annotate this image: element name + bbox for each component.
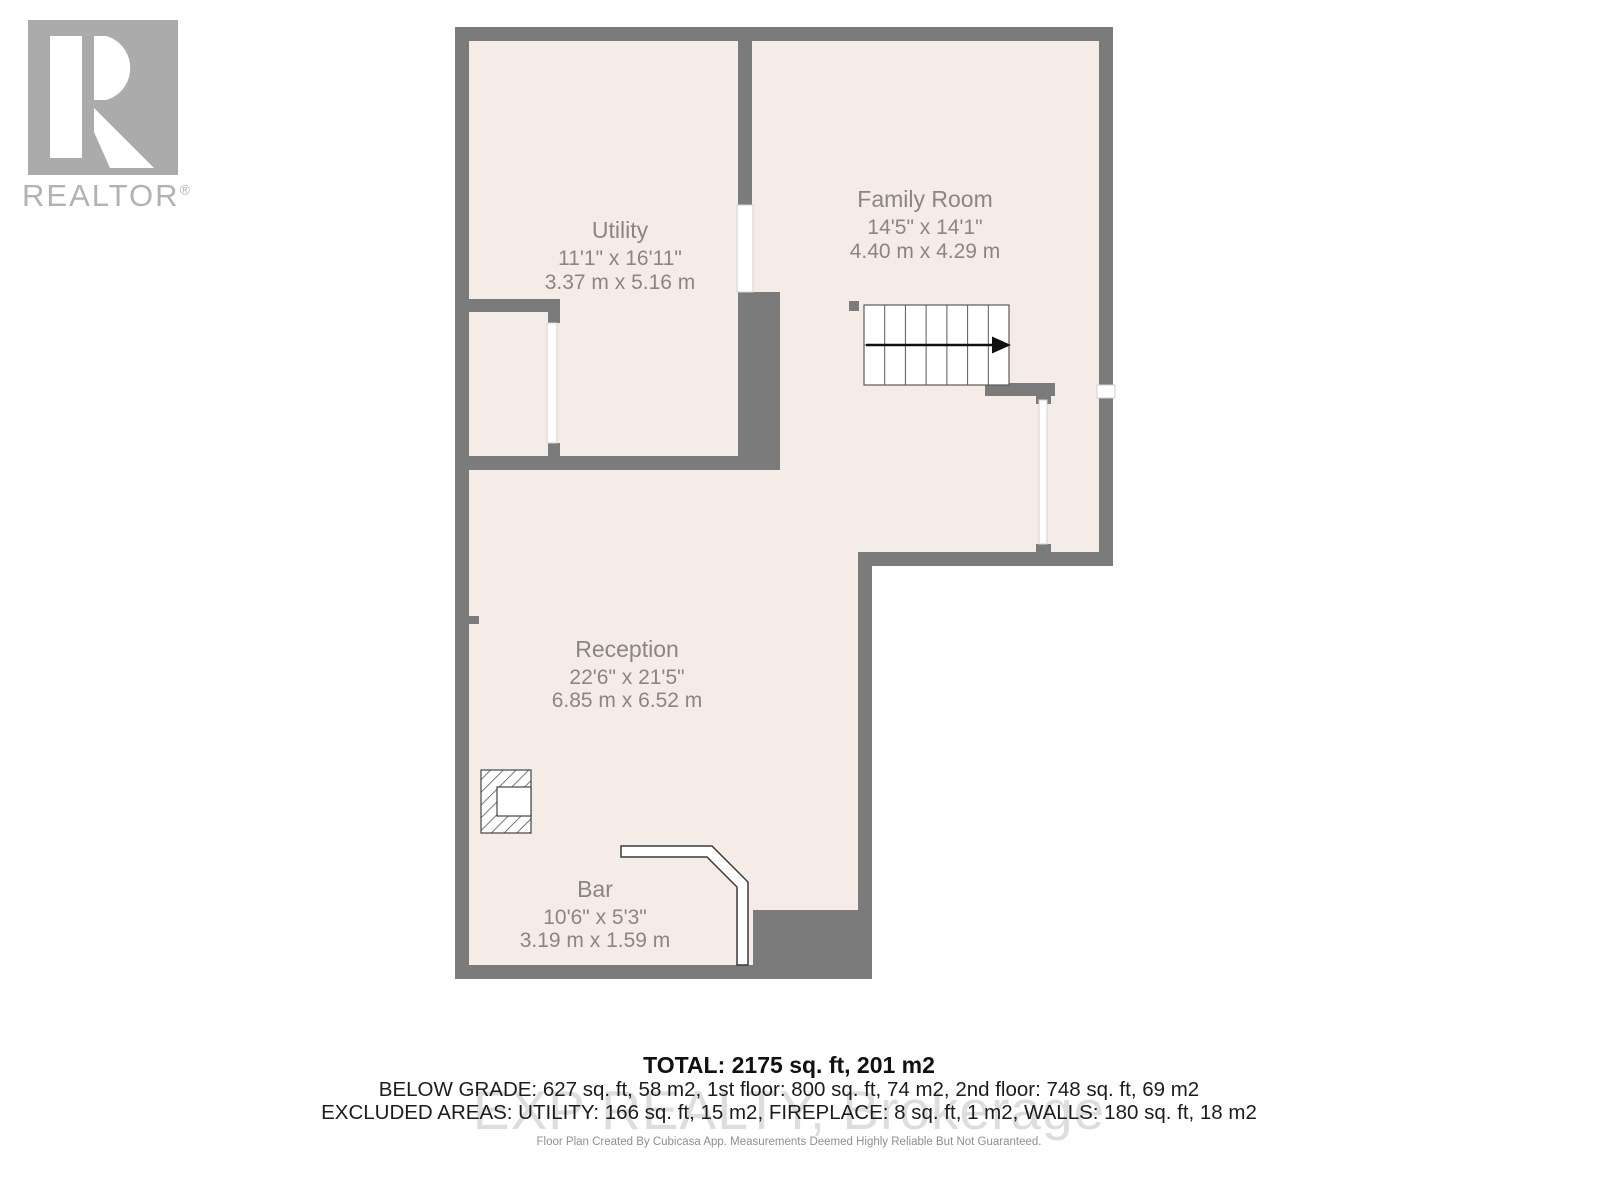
room-dim-metric-family-room: 4.40 m x 4.29 m — [850, 240, 1001, 263]
wall-bottom — [455, 965, 767, 979]
wall-closet-top — [469, 299, 560, 312]
wall-left — [455, 27, 469, 979]
closet-door-jamb-top — [548, 312, 560, 323]
total-area-text: TOTAL: 2175 sq. ft, 201 m2 — [0, 1052, 1578, 1078]
railing-tab-bottom — [1036, 544, 1051, 552]
disclaimer-text: Floor Plan Created By Cubicasa App. Meas… — [0, 1136, 1578, 1148]
room-dim-metric-utility: 3.37 m x 5.16 m — [545, 271, 696, 294]
excluded-areas-text: EXCLUDED AREAS: UTILITY: 166 sq. ft, 15 … — [0, 1101, 1578, 1124]
stair-newel-marker — [849, 301, 859, 311]
room-dim-imperial-family-room: 14'5" x 14'1" — [867, 216, 982, 239]
room-label-reception: Reception — [575, 636, 679, 662]
room-dim-imperial-utility: 11'1" x 16'11" — [558, 247, 682, 270]
realtor-wordmark: REALTOR® — [22, 178, 192, 214]
logo-r-stem — [50, 36, 82, 158]
right-wall-opening — [1097, 385, 1115, 398]
wall-utility-divider — [738, 41, 752, 205]
floor-area — [455, 27, 1113, 979]
closet-door-opening — [547, 323, 557, 443]
wall-left-tab — [469, 616, 479, 624]
wall-right — [1099, 27, 1113, 566]
floor-breakdown-text: BELOW GRADE: 627 sq. ft, 58 m2, 1st floo… — [0, 1078, 1578, 1101]
floorplan-svg: Utility 11'1" x 16'11" 3.37 m x 5.16 m F… — [0, 0, 1600, 1200]
closet-door-jamb-bottom — [548, 443, 560, 456]
wall-top — [455, 27, 1113, 41]
floorplan-page: REALTOR® — [0, 0, 1600, 1200]
staircase — [864, 305, 1011, 385]
area-summary: TOTAL: 2175 sq. ft, 201 m2 BELOW GRADE: … — [0, 1052, 1578, 1124]
room-dim-metric-bar: 3.19 m x 1.59 m — [520, 929, 671, 952]
realtor-logo-graphic — [28, 20, 178, 178]
realtor-label: REALTOR — [22, 178, 180, 213]
wall-bar-block — [753, 910, 872, 979]
room-label-family-room: Family Room — [857, 186, 992, 212]
wall-utility-pillar — [738, 292, 780, 470]
room-dim-imperial-bar: 10'6" x 5'3" — [543, 906, 647, 929]
room-dim-metric-reception: 6.85 m x 6.52 m — [552, 689, 703, 712]
registered-mark: ® — [180, 182, 192, 198]
room-label-utility: Utility — [592, 217, 649, 243]
room-label-bar: Bar — [577, 876, 613, 902]
fireplace — [481, 770, 531, 833]
realtor-logo-icon — [28, 20, 178, 183]
wall-utility-bottom — [469, 456, 780, 470]
utility-door-opening — [737, 205, 753, 292]
stair-railing — [1039, 400, 1047, 544]
wall-familyroom-bottom — [858, 552, 1113, 566]
room-dim-imperial-reception: 22'6" x 21'5" — [569, 666, 684, 689]
wall-reception-right — [858, 552, 872, 924]
